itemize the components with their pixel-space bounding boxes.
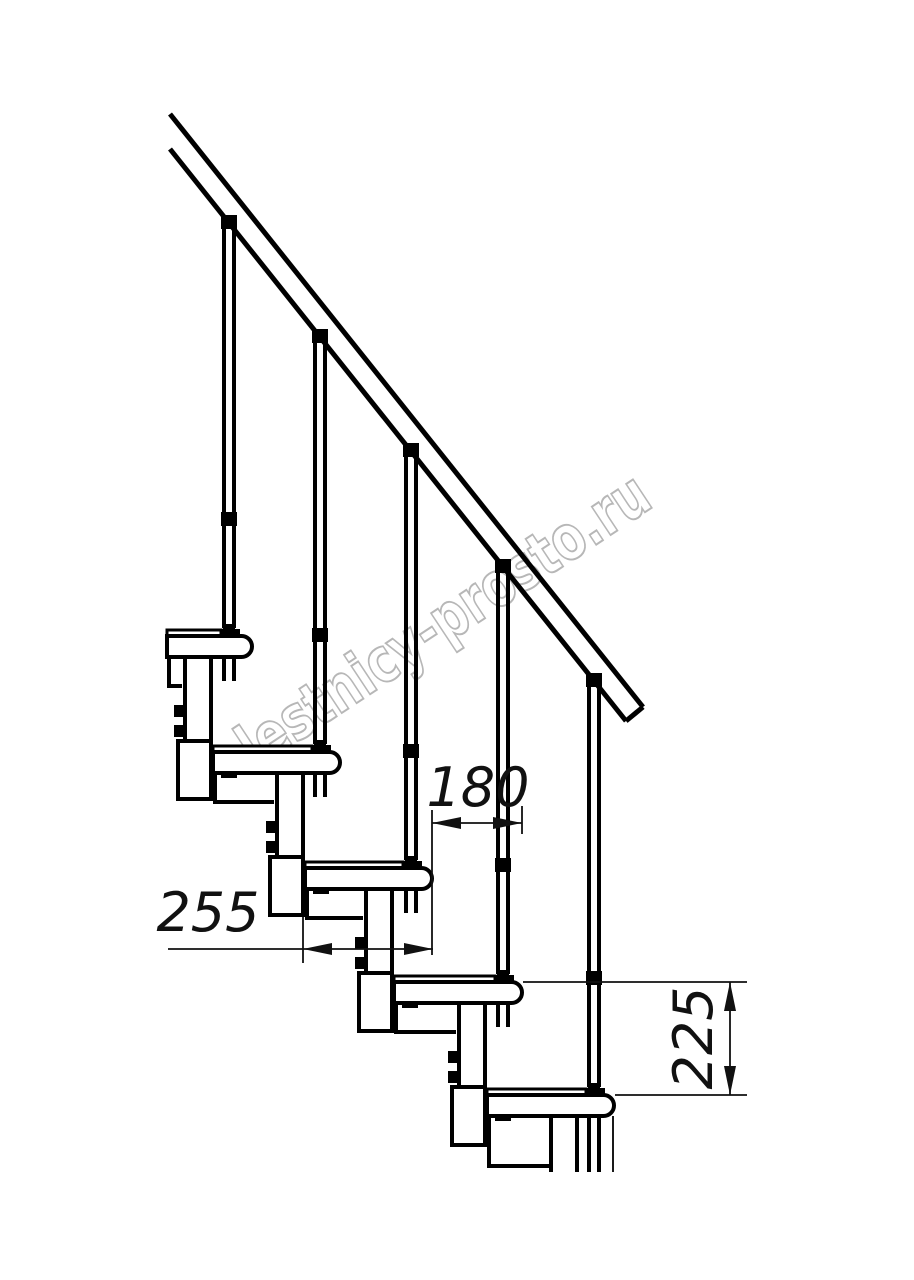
module-bolt-tab [266,821,277,833]
tread [394,976,522,1008]
tread-board [305,868,432,889]
staircase-drawing: lestnicy-prosto.ru [0,0,914,1280]
baluster-sleeve [221,512,237,526]
module-box [178,741,211,799]
tread-board [487,1095,614,1116]
baluster-rail-collar [221,215,237,229]
tread-board [213,752,340,773]
arrowhead-up [724,982,736,1011]
baluster-rail-collar [495,559,511,573]
baluster-rail-collar [403,443,419,457]
baluster-sleeve [312,628,328,642]
dimension-step-run: 180 [426,756,529,955]
staircase-drawing-canvas: lestnicy-prosto.ru [0,0,914,1280]
baluster-sleeve [586,971,602,985]
baluster-rail-collar [586,673,602,687]
support-module [487,1116,613,1172]
baluster-rail-collar [312,329,328,343]
module-bolt-tab [355,957,366,969]
treads [167,630,614,1121]
dimension-label-225: 225 [662,986,725,1089]
tread [305,862,432,894]
arrowhead-left [303,943,332,955]
module-bolt-tab [448,1071,459,1083]
tread-board [394,982,522,1003]
dimension-label-180: 180 [426,756,529,819]
module-bolt-tab [174,725,185,737]
module-box [452,1087,485,1145]
tread [487,1089,614,1121]
baluster-sleeve [403,744,419,758]
baluster [583,673,605,1095]
arrowhead-right [404,943,433,955]
tread-under-nut [313,887,329,894]
baluster-sleeve [495,858,511,872]
tread-under-nut [221,771,237,778]
support-module [305,889,416,1031]
module-box [359,973,392,1031]
arrowhead-down [724,1066,736,1095]
dimension-step-rise: 225 [523,982,747,1095]
dimension-label-255: 255 [156,881,259,944]
module-box [270,857,303,915]
module-bolt-tab [266,841,277,853]
tread [213,746,340,778]
tread-under-nut [495,1114,511,1121]
tread-board [167,636,252,657]
module-bolt-tab [355,937,366,949]
tread-under-nut [402,1001,418,1008]
module-bolt-tab [174,705,185,717]
tread [167,630,252,657]
baluster [218,215,240,636]
module-bolt-tab [448,1051,459,1063]
handrail-end-cap [626,707,643,721]
